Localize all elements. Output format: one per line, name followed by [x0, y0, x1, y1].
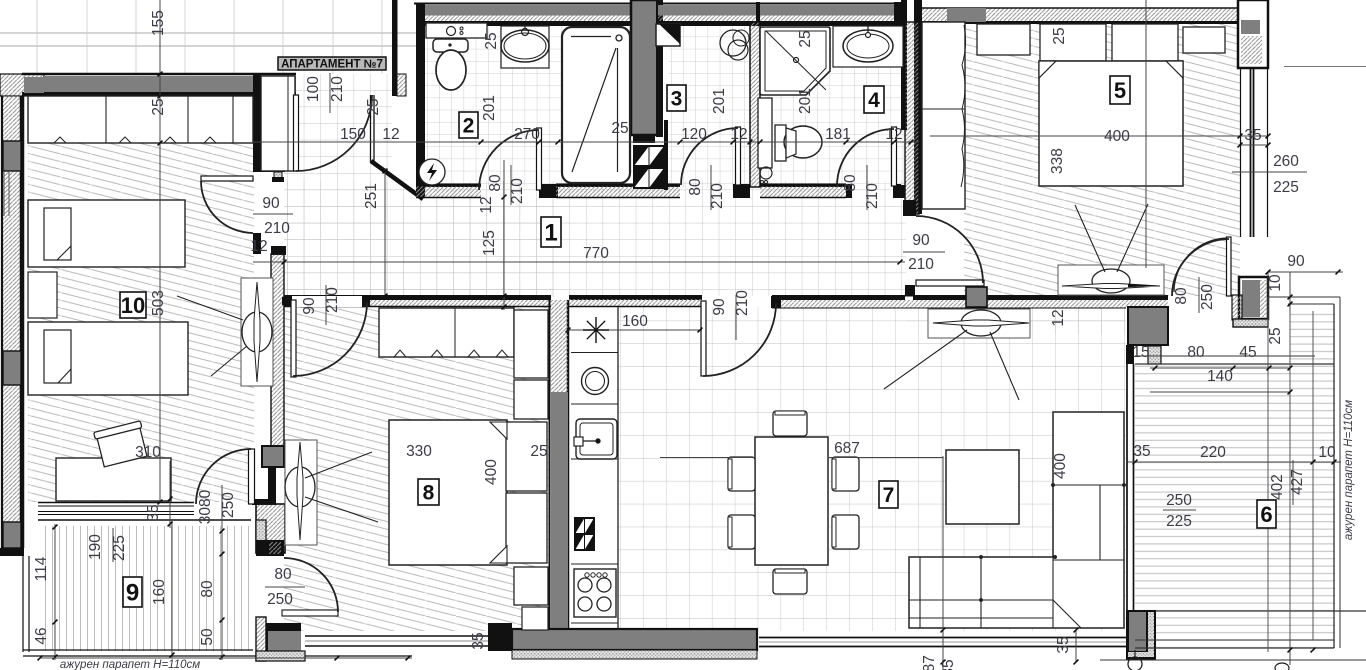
svg-text:150: 150 — [340, 126, 366, 143]
svg-text:35: 35 — [470, 632, 487, 649]
svg-text:25: 25 — [1267, 327, 1284, 344]
svg-text:225: 225 — [111, 535, 128, 561]
svg-text:80: 80 — [842, 174, 859, 192]
svg-text:ажурен парапет H=110см: ажурен парапет H=110см — [60, 659, 200, 670]
svg-text:1: 1 — [544, 220, 557, 247]
svg-text:201: 201 — [481, 95, 498, 121]
svg-text:160: 160 — [622, 313, 648, 330]
svg-text:250: 250 — [267, 591, 293, 608]
svg-text:35: 35 — [940, 659, 957, 670]
svg-text:210: 210 — [264, 220, 290, 237]
svg-text:10: 10 — [121, 293, 145, 318]
svg-text:25: 25 — [150, 98, 167, 115]
svg-text:210: 210 — [734, 290, 751, 316]
svg-text:160: 160 — [151, 579, 168, 605]
svg-text:50: 50 — [199, 628, 216, 646]
svg-text:25: 25 — [365, 98, 382, 115]
svg-text:35: 35 — [1055, 636, 1072, 653]
svg-text:400: 400 — [483, 459, 500, 485]
svg-text:210: 210 — [908, 256, 934, 273]
svg-text:7: 7 — [883, 484, 895, 507]
svg-text:90: 90 — [1287, 253, 1305, 270]
svg-text:8: 8 — [423, 482, 435, 505]
svg-text:201: 201 — [711, 88, 728, 114]
svg-text:90: 90 — [711, 298, 728, 316]
svg-text:338: 338 — [1049, 148, 1066, 174]
svg-text:12: 12 — [1050, 309, 1067, 326]
svg-text:25: 25 — [797, 30, 814, 47]
svg-text:210: 210 — [329, 76, 346, 102]
svg-text:90: 90 — [301, 297, 318, 315]
svg-text:80: 80 — [1187, 344, 1205, 361]
svg-text:25: 25 — [1051, 27, 1068, 44]
svg-text:125: 125 — [481, 230, 498, 256]
svg-text:25: 25 — [611, 120, 628, 137]
svg-text:140: 140 — [1207, 368, 1233, 385]
svg-text:45: 45 — [1239, 344, 1256, 361]
svg-text:9: 9 — [126, 580, 139, 607]
svg-text:2: 2 — [463, 115, 475, 138]
svg-text:310: 310 — [135, 444, 161, 461]
svg-text:503: 503 — [150, 290, 167, 316]
svg-text:270: 270 — [514, 126, 540, 143]
svg-text:402: 402 — [1269, 474, 1286, 500]
svg-text:260: 260 — [1273, 153, 1299, 170]
svg-text:35: 35 — [1133, 443, 1150, 460]
svg-text:220: 220 — [1200, 444, 1226, 461]
svg-text:35: 35 — [1244, 127, 1261, 144]
svg-text:190: 190 — [87, 534, 104, 560]
svg-text:46: 46 — [33, 627, 50, 644]
svg-text:80: 80 — [199, 580, 216, 598]
svg-text:3080: 3080 — [197, 489, 214, 524]
svg-text:100: 100 — [305, 76, 322, 102]
svg-text:90: 90 — [912, 232, 930, 249]
svg-text:181: 181 — [825, 126, 851, 143]
svg-text:80: 80 — [687, 178, 704, 196]
svg-text:251: 251 — [363, 183, 380, 209]
svg-text:12: 12 — [382, 126, 399, 143]
svg-text:687: 687 — [834, 440, 860, 457]
svg-text:80: 80 — [1173, 287, 1190, 305]
svg-text:201: 201 — [797, 88, 814, 114]
svg-text:225: 225 — [1166, 513, 1192, 530]
svg-text:400: 400 — [1104, 128, 1130, 145]
svg-text:120: 120 — [681, 126, 707, 143]
svg-text:3: 3 — [671, 88, 683, 111]
svg-text:90: 90 — [262, 195, 280, 212]
svg-text:80: 80 — [487, 174, 504, 192]
svg-text:210: 210 — [864, 183, 881, 209]
svg-text:4: 4 — [868, 89, 880, 112]
svg-text:25: 25 — [483, 32, 500, 49]
svg-text:225: 225 — [1273, 179, 1299, 196]
svg-text:12: 12 — [250, 238, 267, 255]
svg-text:12: 12 — [730, 126, 747, 143]
svg-text:15: 15 — [1132, 344, 1149, 361]
svg-text:114: 114 — [33, 556, 50, 581]
svg-text:427: 427 — [1289, 469, 1306, 495]
svg-text:АПАРТАМЕНТ №7: АПАРТАМЕНТ №7 — [281, 59, 383, 71]
svg-text:400: 400 — [1052, 453, 1069, 479]
svg-text:35: 35 — [145, 504, 162, 521]
svg-text:12: 12 — [885, 126, 902, 143]
svg-text:ажурен парапет H=110см: ажурен парапет H=110см — [1343, 400, 1355, 540]
svg-text:6: 6 — [1260, 502, 1272, 527]
svg-text:80: 80 — [274, 566, 292, 583]
svg-text:250: 250 — [220, 492, 237, 518]
svg-text:687: 687 — [921, 655, 938, 670]
svg-text:210: 210 — [709, 183, 726, 209]
svg-text:12: 12 — [478, 196, 495, 213]
svg-text:330: 330 — [406, 443, 432, 460]
svg-text:250: 250 — [1199, 284, 1216, 310]
svg-text:210: 210 — [324, 287, 341, 313]
svg-text:770: 770 — [583, 245, 609, 262]
svg-text:210: 210 — [509, 178, 526, 204]
svg-text:10: 10 — [1267, 274, 1284, 292]
svg-text:5: 5 — [1114, 78, 1126, 103]
svg-text:25: 25 — [530, 443, 547, 460]
svg-text:155: 155 — [150, 10, 167, 36]
svg-text:250: 250 — [1166, 492, 1192, 509]
svg-text:10: 10 — [1318, 444, 1336, 461]
